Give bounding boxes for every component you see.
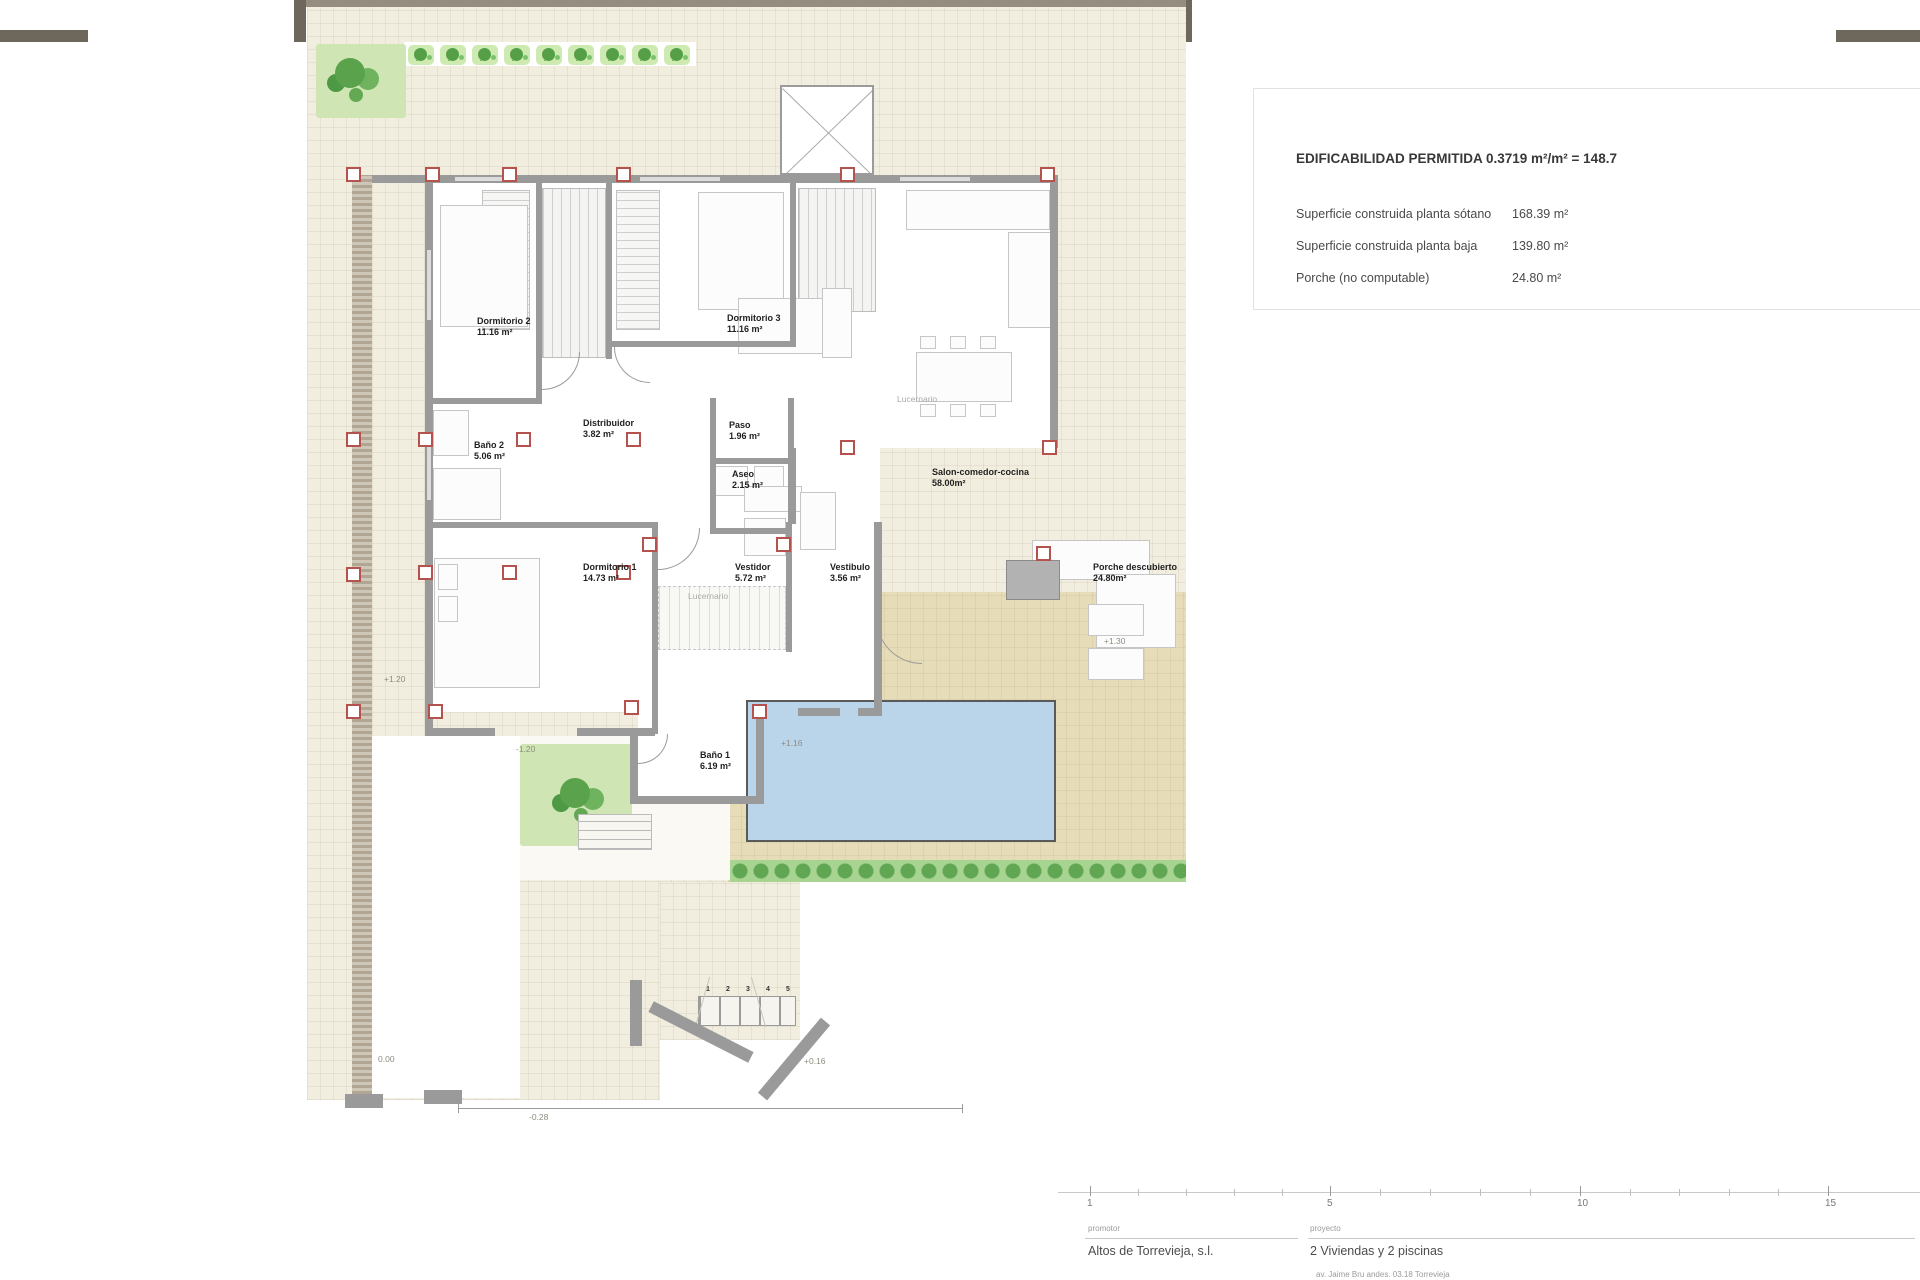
room-label-dormitorio-3: Dormitorio 311.16 m² bbox=[727, 313, 781, 335]
tree-topleft bbox=[335, 58, 365, 88]
dimension-tick bbox=[962, 1104, 963, 1113]
floor-plan-sheet: EDIFICABILIDAD PERMITIDA 0.3719 m²/m² = … bbox=[0, 0, 1920, 1280]
scale-tick bbox=[1330, 1186, 1331, 1196]
room-label-vestibulo: Vestibulo3.56 m² bbox=[830, 562, 870, 584]
kitchen-counter bbox=[1008, 232, 1052, 328]
hedge-plant bbox=[440, 45, 466, 65]
pillar bbox=[418, 432, 433, 447]
wall bbox=[790, 183, 796, 347]
dimension-tick bbox=[458, 1104, 459, 1113]
pillar bbox=[346, 567, 361, 582]
wall bbox=[710, 528, 792, 534]
stair-shaft bbox=[542, 188, 606, 358]
level-marker: 0.00 bbox=[378, 1054, 395, 1064]
hedge-plant bbox=[568, 45, 594, 65]
pillar bbox=[428, 704, 443, 719]
dimension-line bbox=[458, 1108, 963, 1109]
wall bbox=[433, 728, 495, 736]
road-bar-left bbox=[0, 30, 88, 42]
stair-step-number: 4 bbox=[766, 986, 770, 993]
pillar bbox=[840, 167, 855, 182]
wall bbox=[756, 716, 764, 804]
promoter-name: Altos de Torrevieja, s.l. bbox=[1088, 1244, 1214, 1258]
panel-row: Superficie construida planta sótano168.3… bbox=[1296, 207, 1491, 221]
titleblock-rule bbox=[1308, 1238, 1915, 1239]
panel-row: Porche (no computable)24.80 m² bbox=[1296, 271, 1429, 285]
wall bbox=[612, 341, 790, 347]
wall bbox=[433, 522, 655, 528]
panel-row-value: 168.39 m² bbox=[1512, 207, 1568, 221]
barbecue bbox=[1006, 560, 1060, 600]
room-label-dormitorio-1: Dormitorio 114.73 m² bbox=[583, 562, 637, 584]
bed-dorm2 bbox=[440, 205, 528, 327]
panel-row: Superficie construida planta baja139.80 … bbox=[1296, 239, 1477, 253]
scale-number: 5 bbox=[1327, 1198, 1333, 1209]
edificability-title: EDIFICABILIDAD PERMITIDA 0.3719 m²/m² = … bbox=[1296, 151, 1617, 166]
wall bbox=[790, 448, 796, 524]
chair bbox=[920, 404, 936, 417]
pillar bbox=[752, 704, 767, 719]
wall bbox=[710, 398, 716, 534]
edificability-panel: EDIFICABILIDAD PERMITIDA 0.3719 m²/m² = … bbox=[1253, 88, 1920, 310]
pillar bbox=[516, 432, 531, 447]
wall bbox=[630, 796, 764, 804]
wall bbox=[1050, 183, 1058, 448]
scale-tick-minor bbox=[1679, 1189, 1680, 1196]
skylight-box bbox=[780, 85, 874, 175]
hedge-plant bbox=[408, 45, 434, 65]
promoter-label: promotor bbox=[1088, 1224, 1120, 1233]
scale-number: 1 bbox=[1087, 1198, 1093, 1209]
stair-step-number: 2 bbox=[726, 986, 730, 993]
pillar bbox=[502, 565, 517, 580]
chair bbox=[980, 336, 996, 349]
hedge-plant bbox=[504, 45, 530, 65]
hedge-plant bbox=[600, 45, 626, 65]
road-bar-right bbox=[1836, 30, 1920, 42]
panel-row-label: Superficie construida planta sótano bbox=[1296, 207, 1491, 221]
sunbed bbox=[1088, 604, 1144, 636]
room-label-distribuidor: Distribuidor3.82 m² bbox=[583, 418, 634, 440]
pillar bbox=[502, 167, 517, 182]
stair-step-number: 3 bbox=[746, 986, 750, 993]
scale-tick-minor bbox=[1380, 1189, 1381, 1196]
room-label-paso: Paso1.96 m² bbox=[729, 420, 760, 442]
scale-tick-minor bbox=[1234, 1189, 1235, 1196]
plot-top-edge bbox=[306, 0, 1186, 7]
hedge-plant bbox=[632, 45, 658, 65]
pillar bbox=[346, 704, 361, 719]
room-label-ba-o-1: Baño 16.19 m² bbox=[700, 750, 731, 772]
pillow bbox=[438, 596, 458, 622]
room-label-ba-o-2: Baño 25.06 m² bbox=[474, 440, 505, 462]
pillow bbox=[438, 564, 458, 590]
level-marker: +1.20 bbox=[384, 674, 406, 684]
pillar bbox=[776, 537, 791, 552]
pillar bbox=[418, 565, 433, 580]
level-marker: +0.16 bbox=[804, 1056, 826, 1066]
pillar bbox=[346, 432, 361, 447]
scale-tick-minor bbox=[1186, 1189, 1187, 1196]
scale-tick bbox=[1090, 1186, 1091, 1196]
wall bbox=[424, 1090, 462, 1104]
pillar bbox=[346, 167, 361, 182]
chair bbox=[950, 404, 966, 417]
pillar bbox=[1036, 546, 1051, 561]
wall bbox=[798, 708, 840, 716]
entry-steps bbox=[578, 814, 652, 850]
wall bbox=[652, 522, 658, 734]
wall bbox=[630, 980, 642, 1046]
project-address: av. Jaime Bru andes. 03.18 Torrevieja bbox=[1316, 1270, 1450, 1279]
ramp-stairs bbox=[698, 996, 796, 1026]
panel-row-label: Superficie construida planta baja bbox=[1296, 239, 1477, 253]
scale-tick bbox=[1580, 1186, 1581, 1196]
room-label-aseo: Aseo2.15 m² bbox=[732, 469, 763, 491]
sink-bath2 bbox=[433, 410, 469, 456]
wall bbox=[606, 183, 612, 359]
level-marker: -1.20 bbox=[516, 744, 535, 754]
pillar bbox=[624, 700, 639, 715]
hedge-plant bbox=[664, 45, 690, 65]
room-label-salon-comedor-cocina: Salon-comedor-cocina58.00m² bbox=[932, 467, 1029, 489]
scale-number: 15 bbox=[1825, 1198, 1836, 1209]
hedge-plant bbox=[536, 45, 562, 65]
panel-row-value: 24.80 m² bbox=[1512, 271, 1561, 285]
scale-tick-minor bbox=[1282, 1189, 1283, 1196]
pillar bbox=[642, 537, 657, 552]
level-marker: -0.28 bbox=[529, 1112, 548, 1122]
hedge-bottom bbox=[730, 860, 1186, 882]
project-name: 2 Viviendas y 2 piscinas bbox=[1310, 1244, 1443, 1258]
panel-row-value: 139.80 m² bbox=[1512, 239, 1568, 253]
chair bbox=[980, 404, 996, 417]
bathtub-bath2 bbox=[433, 468, 501, 520]
sofa bbox=[822, 288, 852, 358]
scale-baseline bbox=[1058, 1192, 1920, 1193]
window bbox=[427, 440, 431, 500]
room-label-porche-descubierto: Porche descubierto24.80m² bbox=[1093, 562, 1177, 584]
scale-tick bbox=[1828, 1186, 1829, 1196]
swimming-pool bbox=[746, 700, 1056, 842]
titleblock-rule bbox=[1085, 1238, 1298, 1239]
bed-dorm3 bbox=[698, 192, 784, 310]
scale-tick-minor bbox=[1729, 1189, 1730, 1196]
window bbox=[427, 250, 431, 320]
lucernario-label: Lucernario bbox=[688, 591, 728, 601]
room-label-vestidor: Vestidor5.72 m² bbox=[735, 562, 771, 584]
pillar bbox=[840, 440, 855, 455]
wardrobe-dorm3 bbox=[616, 190, 660, 330]
chair bbox=[920, 336, 936, 349]
panel-row-label: Porche (no computable) bbox=[1296, 271, 1429, 285]
wall bbox=[345, 1094, 383, 1108]
scale-number: 10 bbox=[1577, 1198, 1588, 1209]
pillar bbox=[1042, 440, 1057, 455]
tree-mid bbox=[560, 778, 590, 808]
hedge-plant bbox=[472, 45, 498, 65]
wall bbox=[577, 728, 655, 736]
window bbox=[900, 177, 970, 181]
scale-tick-minor bbox=[1138, 1189, 1139, 1196]
wall bbox=[536, 183, 542, 404]
scale-tick-minor bbox=[1530, 1189, 1531, 1196]
boundary-post-left bbox=[294, 0, 306, 42]
level-marker: +1.30 bbox=[1104, 636, 1126, 646]
lucernario-label: Lucernario bbox=[897, 394, 937, 404]
scale-tick-minor bbox=[1480, 1189, 1481, 1196]
wall bbox=[630, 728, 638, 804]
wall bbox=[858, 708, 882, 716]
chair bbox=[950, 336, 966, 349]
driveway bbox=[372, 736, 520, 1098]
level-marker: +1.16 bbox=[781, 738, 803, 748]
wall bbox=[874, 522, 882, 714]
wall bbox=[710, 458, 792, 464]
tv-unit bbox=[800, 492, 836, 550]
boundary-fence bbox=[352, 175, 372, 1100]
scale-tick-minor bbox=[1430, 1189, 1431, 1196]
pillar bbox=[425, 167, 440, 182]
wall bbox=[433, 398, 538, 404]
scale-tick-minor bbox=[1778, 1189, 1779, 1196]
pillar bbox=[616, 167, 631, 182]
room-label-dormitorio-2: Dormitorio 211.16 m² bbox=[477, 316, 531, 338]
kitchen-counter bbox=[906, 190, 1050, 230]
scale-tick-minor bbox=[1630, 1189, 1631, 1196]
window bbox=[640, 177, 720, 181]
project-label: proyecto bbox=[1310, 1224, 1341, 1233]
sunbed bbox=[1088, 648, 1144, 680]
pillar bbox=[1040, 167, 1055, 182]
stair-step-number: 5 bbox=[786, 986, 790, 993]
